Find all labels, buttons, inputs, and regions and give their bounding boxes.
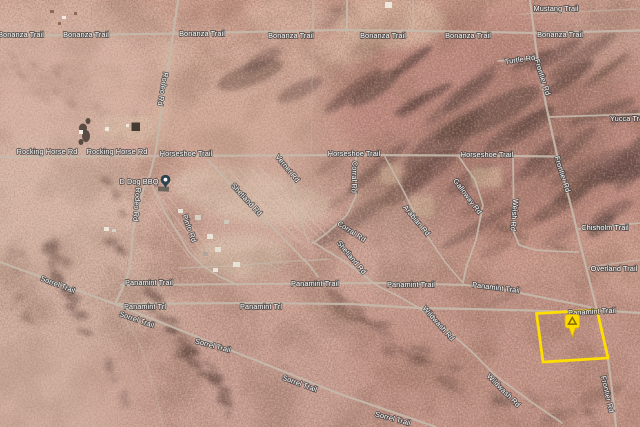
svg-text:D Dog BBQ: D Dog BBQ [119, 177, 158, 186]
svg-text:Bonanza Trail: Bonanza Trail [445, 31, 491, 40]
svg-text:Chisholm Trail: Chisholm Trail [581, 223, 629, 232]
svg-text:Rocking Horse Rd: Rocking Horse Rd [17, 147, 78, 156]
svg-text:Bonanza Trail: Bonanza Trail [537, 30, 583, 39]
svg-text:Horseshoe Trail: Horseshoe Trail [328, 149, 381, 158]
svg-text:Horseshoe Trail: Horseshoe Trail [461, 150, 514, 159]
svg-text:Panamint Trail: Panamint Trail [125, 278, 173, 287]
svg-text:Bonanza Trail: Bonanza Trail [179, 29, 225, 38]
svg-text:Panamint Trl: Panamint Trl [240, 302, 282, 311]
svg-text:Bonanza Trail: Bonanza Trail [63, 30, 109, 39]
svg-text:Panamint Trl: Panamint Trl [124, 302, 166, 311]
svg-text:Mustang Trail: Mustang Trail [533, 4, 578, 13]
svg-text:Panamint Trail: Panamint Trail [387, 280, 435, 289]
svg-text:Yucca Trail: Yucca Trail [610, 114, 640, 123]
svg-text:Bonanza Trail: Bonanza Trail [360, 31, 406, 40]
svg-text:Panamint Trail: Panamint Trail [291, 279, 339, 288]
svg-text:Corral Rd: Corral Rd [349, 161, 359, 193]
svg-text:Overland Trail: Overland Trail [591, 264, 638, 273]
svg-text:Bonanza Trail: Bonanza Trail [268, 31, 314, 40]
svg-text:Bonanza Trail: Bonanza Trail [0, 30, 44, 39]
svg-text:Rocking Horse Rd: Rocking Horse Rd [87, 147, 148, 156]
svg-text:Horseshoe Trail: Horseshoe Trail [160, 149, 213, 158]
